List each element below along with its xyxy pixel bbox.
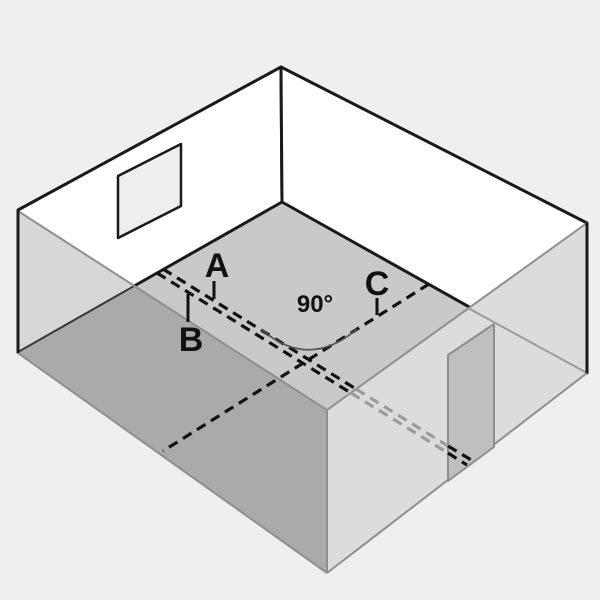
room-isometric-diagram: A B C 90°	[0, 0, 600, 600]
label-line-a: A	[205, 247, 230, 285]
label-line-c: C	[365, 265, 390, 303]
label-line-b: B	[179, 321, 204, 359]
label-angle-90: 90°	[297, 291, 333, 318]
